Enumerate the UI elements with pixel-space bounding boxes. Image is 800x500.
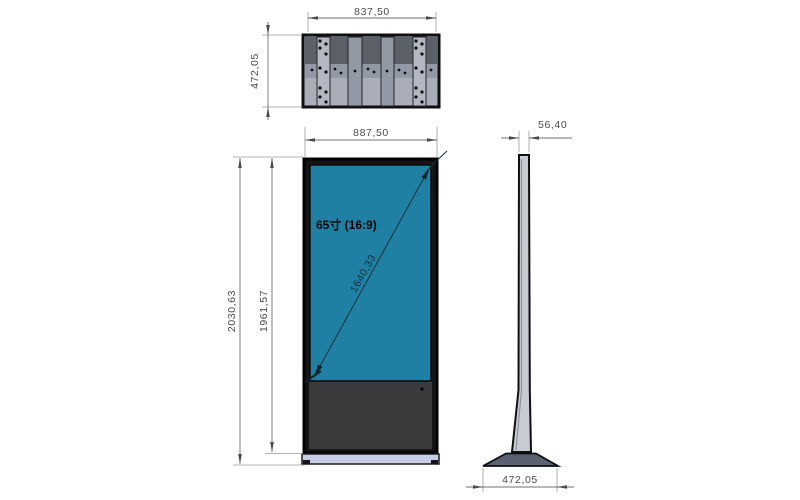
dim-arrow bbox=[308, 16, 318, 20]
base-foot bbox=[431, 460, 438, 464]
ir-sensor-dot bbox=[420, 387, 423, 390]
dim-arrow bbox=[473, 485, 483, 489]
cabinet-lower-panel bbox=[309, 380, 432, 449]
side-view bbox=[483, 155, 558, 466]
dim-front-width: 887,50 bbox=[305, 127, 437, 157]
dim-body-height: 1961,57 bbox=[258, 158, 303, 454]
dim-arrow bbox=[529, 136, 539, 140]
dim-base-depth: 472,05 bbox=[466, 468, 574, 492]
dim-arrow bbox=[270, 158, 274, 168]
front-base bbox=[302, 454, 439, 464]
dim-value-side-thickness: 56,40 bbox=[538, 119, 567, 131]
screen-size-label: 65寸 (16:9) bbox=[316, 217, 377, 232]
dim-value-body-height: 1961,57 bbox=[258, 290, 270, 332]
side-base bbox=[483, 454, 558, 467]
front-view: 65寸 (16:9) 1640,33 bbox=[302, 151, 447, 464]
dim-value-front-width: 887,50 bbox=[353, 127, 389, 139]
dim-arrow bbox=[266, 25, 270, 35]
dim-side-thickness: 56,40 bbox=[501, 119, 572, 152]
dim-value-overall-height: 2030,63 bbox=[226, 290, 238, 332]
dim-value-top-depth: 472,05 bbox=[249, 53, 261, 89]
engineering-drawing: 837,50 472,05 65寸 (16:9) 1640,33 bbox=[0, 0, 800, 500]
dim-arrow bbox=[426, 16, 436, 20]
dim-value-top-width: 837,50 bbox=[354, 6, 390, 18]
top-view bbox=[303, 35, 439, 107]
dim-arrow bbox=[509, 136, 519, 140]
dim-arrow bbox=[266, 107, 270, 117]
dim-top-view-width: 837,50 bbox=[308, 6, 436, 32]
dim-arrow bbox=[557, 485, 567, 489]
dim-arrow bbox=[238, 454, 242, 464]
base-foot bbox=[303, 460, 310, 464]
dim-value-base-depth: 472,05 bbox=[502, 474, 538, 486]
dim-top-view-depth: 472,05 bbox=[249, 22, 302, 120]
drawing-canvas: 837,50 472,05 65寸 (16:9) 1640,33 bbox=[0, 0, 800, 500]
dim-arrow bbox=[270, 442, 274, 452]
dim-arrow bbox=[305, 138, 315, 142]
dim-arrow bbox=[238, 158, 242, 168]
dim-arrow bbox=[427, 138, 437, 142]
